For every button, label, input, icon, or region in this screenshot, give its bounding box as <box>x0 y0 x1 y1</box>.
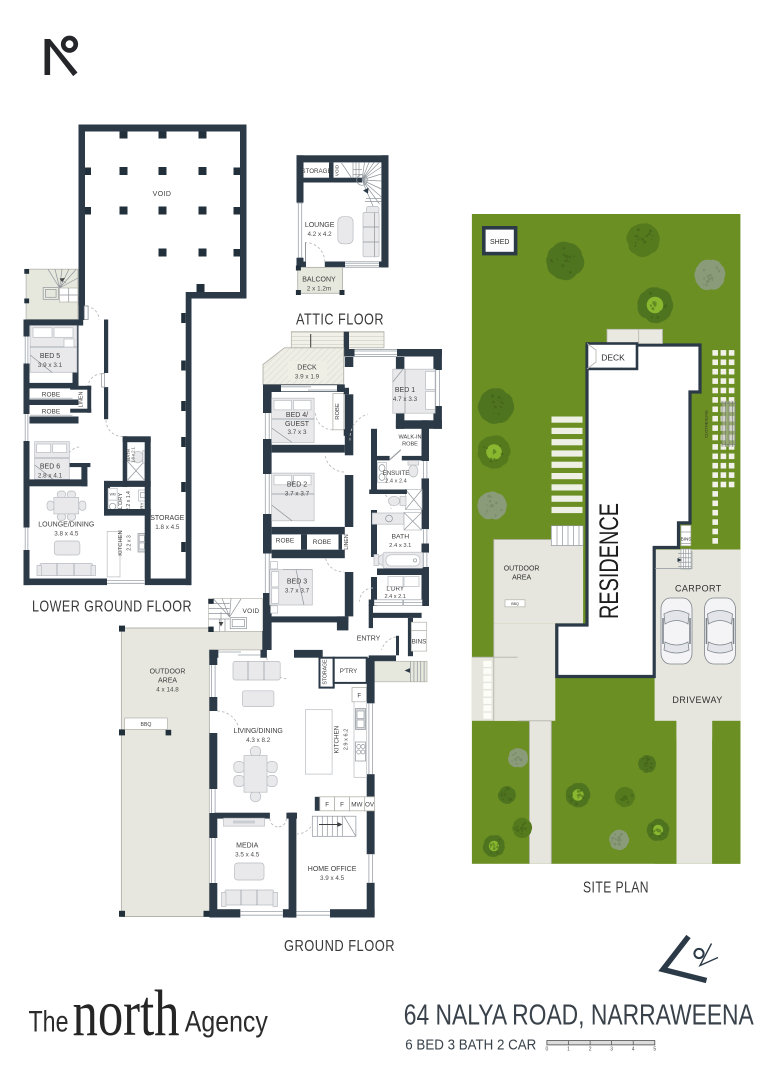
svg-text:3: 3 <box>610 1047 613 1053</box>
svg-text:BALCONY: BALCONY <box>302 277 336 284</box>
svg-text:3.5 x 4.5: 3.5 x 4.5 <box>235 852 260 859</box>
svg-text:4.2 x 4.2: 4.2 x 4.2 <box>308 231 333 238</box>
svg-text:OUTDOOR: OUTDOOR <box>504 566 540 573</box>
svg-text:SITE PLAN: SITE PLAN <box>583 880 649 897</box>
svg-text:BINS: BINS <box>681 537 692 542</box>
svg-text:CARPORT: CARPORT <box>675 584 722 594</box>
svg-text:AREA: AREA <box>158 678 177 685</box>
svg-text:2 x 1.2m: 2 x 1.2m <box>307 286 331 293</box>
svg-text:64 NALYA ROAD, NARRAWEENA: 64 NALYA ROAD, NARRAWEENA <box>404 1000 754 1032</box>
svg-text:AREA: AREA <box>512 575 531 582</box>
svg-text:F: F <box>325 802 329 809</box>
svg-text:CLOTHESLINE: CLOTHESLINE <box>704 410 709 438</box>
svg-text:1.8 x 4.5: 1.8 x 4.5 <box>155 524 180 531</box>
svg-text:LOWER GROUND FLOOR: LOWER GROUND FLOOR <box>32 599 192 616</box>
svg-text:GROUND FLOOR: GROUND FLOOR <box>284 938 395 955</box>
svg-text:2.4 x 3.1: 2.4 x 3.1 <box>389 543 411 549</box>
svg-text:MEDIA: MEDIA <box>236 843 259 850</box>
svg-text:GUEST: GUEST <box>285 421 310 428</box>
svg-text:6 BED 3 BATH 2 CAR: 6 BED 3 BATH 2 CAR <box>405 1037 536 1053</box>
svg-text:5: 5 <box>653 1047 656 1053</box>
svg-text:SHED: SHED <box>490 239 509 246</box>
svg-text:DRIVEWAY: DRIVEWAY <box>672 695 722 705</box>
svg-text:DECK: DECK <box>297 365 317 372</box>
svg-text:0: 0 <box>546 1047 549 1053</box>
svg-text:2: 2 <box>589 1047 592 1053</box>
svg-text:KITCHEN: KITCHEN <box>334 725 341 753</box>
svg-text:STORAGE: STORAGE <box>323 659 329 685</box>
svg-text:ROBE: ROBE <box>313 539 332 546</box>
svg-text:BED 1: BED 1 <box>395 387 415 394</box>
svg-text:3.7 x 3.7: 3.7 x 3.7 <box>285 588 310 595</box>
svg-text:ROBE: ROBE <box>335 403 341 420</box>
svg-text:3.9 x 1.9: 3.9 x 1.9 <box>295 374 320 381</box>
svg-text:3.9 x 4.5: 3.9 x 4.5 <box>320 875 345 882</box>
svg-text:KITCHEN: KITCHEN <box>118 530 124 555</box>
svg-text:MW: MW <box>351 802 362 809</box>
svg-text:P'TRY: P'TRY <box>340 668 358 675</box>
svg-text:1.8 x 2.1: 1.8 x 2.1 <box>131 446 136 463</box>
svg-text:VOID: VOID <box>242 608 259 615</box>
svg-text:OUTDOOR: OUTDOOR <box>150 669 186 676</box>
svg-text:3.8 x 4.5: 3.8 x 4.5 <box>54 531 79 538</box>
svg-text:VOID: VOID <box>335 164 340 176</box>
svg-text:2.2 x 1.4: 2.2 x 1.4 <box>126 491 132 511</box>
svg-text:LOUNGE: LOUNGE <box>305 222 335 229</box>
svg-text:BED 4/: BED 4/ <box>286 412 308 419</box>
svg-text:LINEN: LINEN <box>344 534 350 550</box>
svg-text:2.9 x 6.2: 2.9 x 6.2 <box>344 729 350 750</box>
svg-text:4 x 14.8: 4 x 14.8 <box>156 687 179 694</box>
svg-text:BBQ: BBQ <box>141 722 152 728</box>
svg-text:BED 5: BED 5 <box>40 353 60 360</box>
svg-text:STORAGE: STORAGE <box>150 515 184 522</box>
svg-text:BED 2: BED 2 <box>287 482 307 489</box>
svg-text:4.3 x 8.2: 4.3 x 8.2 <box>246 737 271 744</box>
svg-text:ENTRY: ENTRY <box>357 636 381 643</box>
svg-text:OV: OV <box>365 802 375 809</box>
svg-text:WM: WM <box>110 493 116 497</box>
svg-text:ROBE: ROBE <box>42 392 61 399</box>
svg-text:4: 4 <box>632 1047 635 1053</box>
svg-text:ROBE: ROBE <box>402 442 418 448</box>
svg-text:LOUNGE/DINING: LOUNGE/DINING <box>38 522 94 529</box>
svg-text:WALK-IN: WALK-IN <box>398 435 421 441</box>
svg-text:2.4 x 2.4: 2.4 x 2.4 <box>385 479 406 485</box>
svg-text:2.8 x 4.1: 2.8 x 4.1 <box>38 473 63 480</box>
svg-text:ROBE: ROBE <box>276 538 295 545</box>
svg-text:ENSUITE: ENSUITE <box>383 470 410 477</box>
svg-text:HOME OFFICE: HOME OFFICE <box>308 866 357 873</box>
svg-text:F: F <box>357 693 361 700</box>
svg-text:2.2 x 3: 2.2 x 3 <box>127 535 133 551</box>
svg-text:L'DRY: L'DRY <box>118 493 124 510</box>
svg-text:1: 1 <box>567 1047 570 1053</box>
svg-text:RESIDENCE: RESIDENCE <box>594 503 624 619</box>
svg-text:Agency: Agency <box>185 1006 268 1039</box>
svg-text:The: The <box>29 1006 69 1039</box>
svg-text:F: F <box>340 802 344 809</box>
svg-text:LINEN: LINEN <box>78 391 84 407</box>
svg-text:BATH: BATH <box>391 534 409 541</box>
svg-text:BINS: BINS <box>412 639 427 646</box>
svg-text:ATTIC FLOOR: ATTIC FLOOR <box>296 312 384 329</box>
svg-text:ROBE: ROBE <box>42 409 61 416</box>
svg-text:VOID: VOID <box>153 191 172 198</box>
svg-text:3.9 x 3.1: 3.9 x 3.1 <box>38 362 63 369</box>
svg-text:3.7 x 3.7: 3.7 x 3.7 <box>285 491 310 498</box>
svg-text:2.4 x 2.1: 2.4 x 2.1 <box>384 594 405 600</box>
svg-text:BED 6: BED 6 <box>40 464 60 471</box>
svg-text:north: north <box>73 977 180 1050</box>
svg-text:LIVING/DINING: LIVING/DINING <box>233 728 282 735</box>
svg-text:BED 3: BED 3 <box>287 579 307 586</box>
svg-text:3.7 x 3: 3.7 x 3 <box>288 429 307 436</box>
svg-text:STORAGE: STORAGE <box>301 168 331 175</box>
svg-text:DECK: DECK <box>601 353 625 363</box>
svg-text:4.7 x 3.3: 4.7 x 3.3 <box>393 396 418 403</box>
svg-text:BBQ: BBQ <box>511 602 519 606</box>
